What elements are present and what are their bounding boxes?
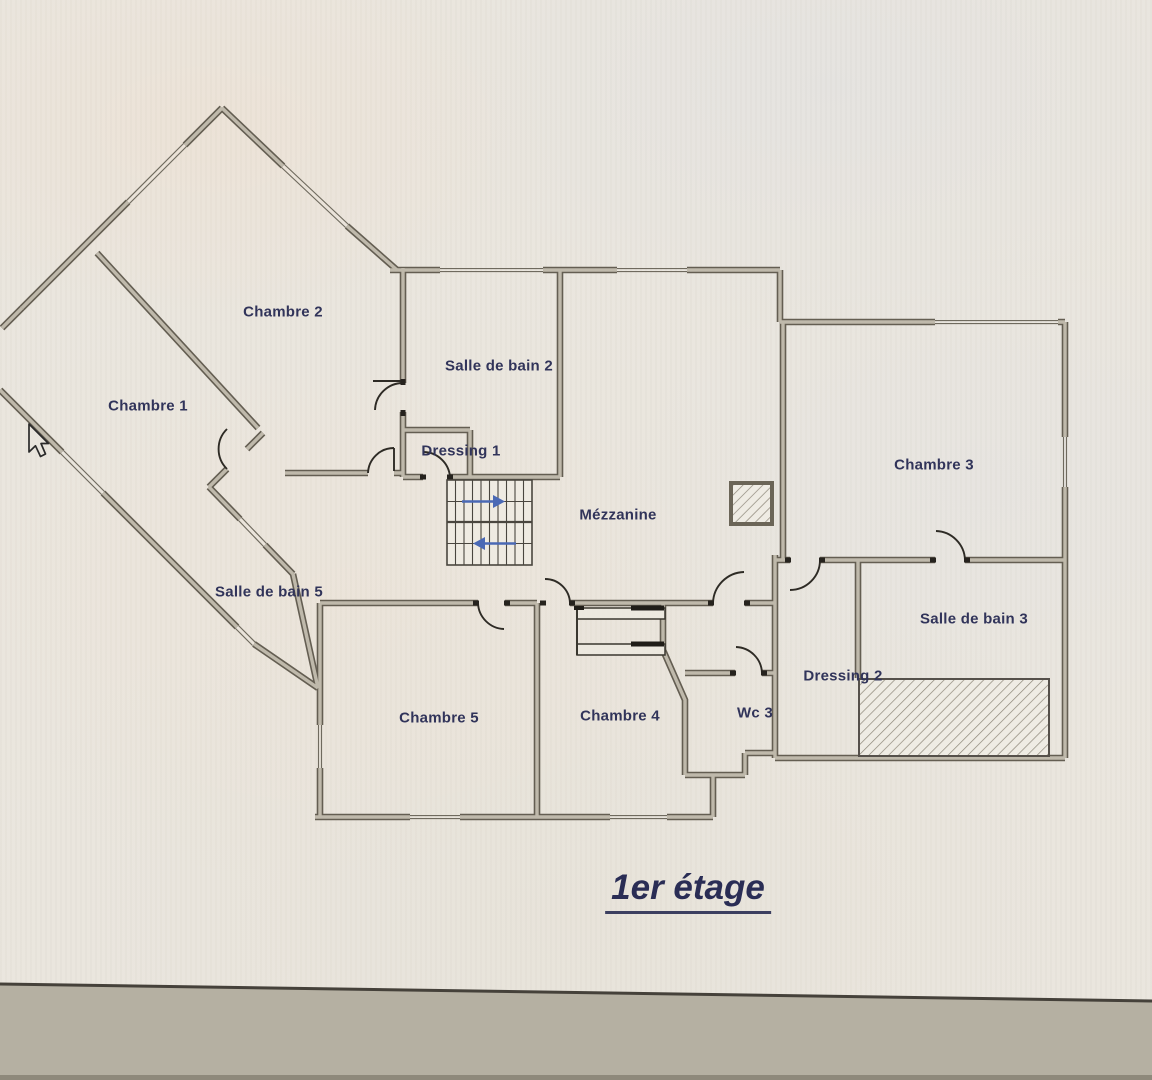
room-label-chambre-5: Chambre 5 [399,710,479,727]
room-label-salle-de-bain-2: Salle de bain 2 [445,358,553,375]
room-label-wc-3: Wc 3 [737,705,773,722]
room-label-chambre-1: Chambre 1 [108,398,188,415]
room-label-chambre-4: Chambre 4 [580,708,660,725]
door-arcs [219,381,965,673]
room-label-salle-de-bain-5: Salle de bain 5 [215,584,323,601]
room-label-dressing-2: Dressing 2 [803,668,882,685]
bottom-edge-band [0,984,1152,1080]
floor-title: 1er étage [605,868,771,914]
staircase [447,480,532,565]
room-label-chambre-2: Chambre 2 [243,304,323,321]
closet-unit [574,606,665,656]
floor-plan-drawing [0,0,1152,1080]
room-label-salle-de-bain-3: Salle de bain 3 [920,611,1028,628]
floor-plan-screen: Chambre 1 Chambre 2 Salle de bain 2 Dres… [0,0,1152,1080]
room-label-mezzanine: Mézzanine [579,507,656,524]
room-label-dressing-1: Dressing 1 [421,443,500,460]
room-label-chambre-3: Chambre 3 [894,457,974,474]
